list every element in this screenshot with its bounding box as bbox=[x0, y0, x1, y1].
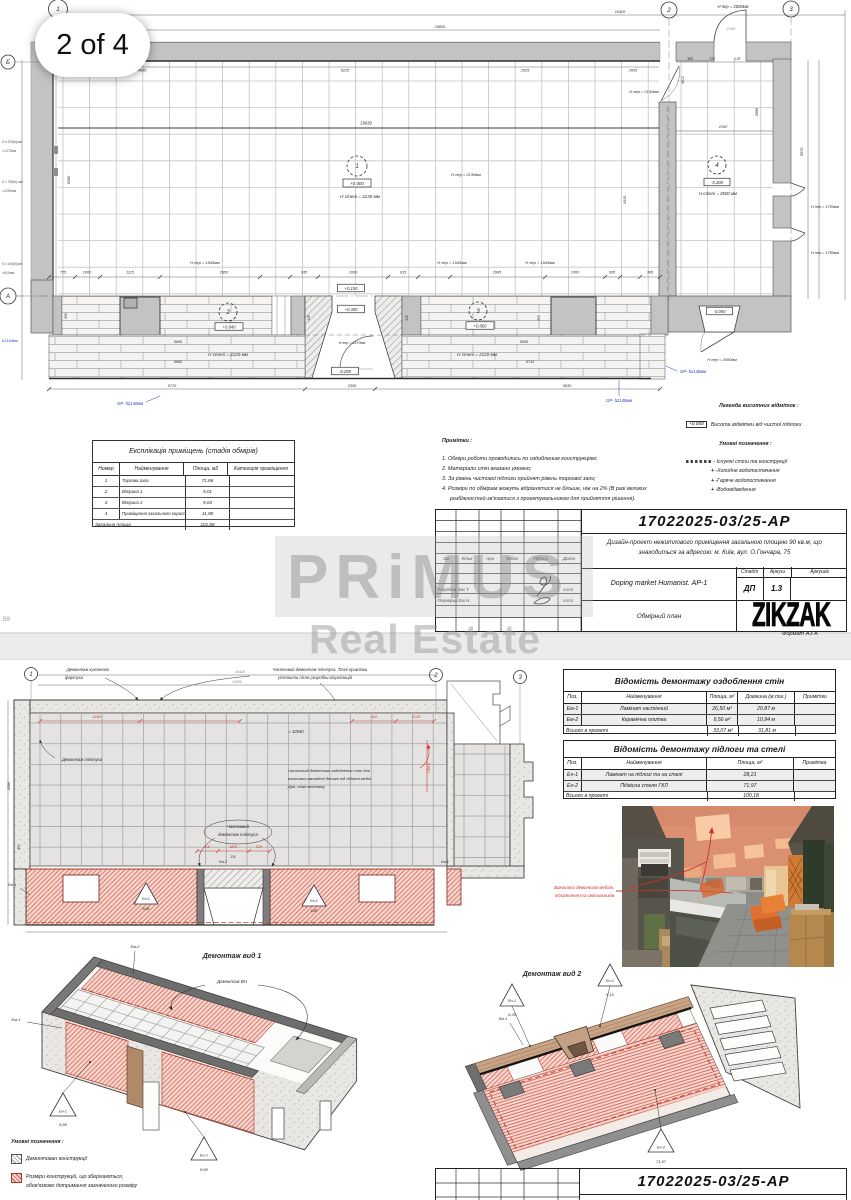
svg-text:Н стелі = 3130 мм: Н стелі = 3130 мм bbox=[340, 194, 381, 199]
svg-text:915: 915 bbox=[400, 271, 407, 275]
svg-text:×1375мм: ×1375мм bbox=[2, 149, 17, 153]
svg-text:монтажа закладної деталі під п: монтажа закладної деталі під підвісні ме… bbox=[288, 776, 372, 781]
svg-text:Ен-2: Ен-2 bbox=[657, 1146, 666, 1150]
svg-text:19630: 19630 bbox=[360, 121, 372, 126]
svg-text:фартуха: фартуха bbox=[65, 675, 84, 680]
svg-text:2: 2 bbox=[666, 8, 671, 14]
svg-text:GP- h2140мм: GP- h2140мм bbox=[117, 401, 143, 406]
svg-text:h2140мм: h2140мм bbox=[2, 339, 18, 343]
svg-text:2680: 2680 bbox=[755, 108, 759, 117]
svg-text:+0.840: +0.840 bbox=[223, 325, 237, 330]
svg-text:4610: 4610 bbox=[681, 76, 685, 84]
svg-text:16420: 16420 bbox=[235, 670, 245, 674]
svg-text:Ен-1: Ен-1 bbox=[606, 979, 614, 983]
svg-text:11830: 11830 bbox=[232, 680, 242, 684]
svg-text:Демонтаж кухонного: Демонтаж кухонного bbox=[66, 667, 110, 672]
svg-text:16420: 16420 bbox=[615, 10, 626, 14]
svg-text:5 х 415(h)мм: 5 х 415(h)мм bbox=[2, 262, 23, 266]
svg-text:Ем-1: Ем-1 bbox=[441, 860, 449, 864]
svg-text:2: 2 bbox=[433, 673, 438, 679]
svg-text:А: А bbox=[5, 294, 10, 300]
svg-text:0 х 755(h) мм: 0 х 755(h) мм bbox=[2, 180, 24, 184]
svg-text:Ен-1: Ен-1 bbox=[59, 1110, 67, 1114]
svg-text:Н пер = 2470мм: Н пер = 2470мм bbox=[339, 341, 366, 345]
svg-text:Демонтаж плінтуса: Демонтаж плінтуса bbox=[61, 757, 103, 762]
svg-text:5830: 5830 bbox=[563, 384, 572, 388]
svg-text:2950: 2950 bbox=[219, 271, 229, 275]
svg-text:1830: 1830 bbox=[229, 845, 237, 849]
svg-text:2305: 2305 bbox=[347, 384, 357, 388]
svg-text:Демонтаж вид 1: Демонтаж вид 1 bbox=[202, 952, 262, 960]
svg-text:2150: 2150 bbox=[718, 125, 728, 129]
svg-text:1000: 1000 bbox=[83, 271, 92, 275]
svg-text:71,97: 71,97 bbox=[656, 1159, 667, 1164]
svg-text:1000: 1000 bbox=[571, 271, 580, 275]
svg-text:+0.000: +0.000 bbox=[350, 181, 364, 186]
svg-text:-0.250: -0.250 bbox=[339, 369, 352, 374]
svg-text:Н пер = 2130мм: Н пер = 2130мм bbox=[629, 89, 659, 94]
svg-text:6,88: 6,88 bbox=[311, 909, 318, 913]
svg-text:5095: 5095 bbox=[520, 340, 529, 344]
svg-text:5665: 5665 bbox=[174, 360, 183, 364]
svg-text:720: 720 bbox=[709, 57, 715, 61]
svg-text:420: 420 bbox=[371, 715, 377, 719]
svg-text:6,46: 6,46 bbox=[143, 907, 150, 911]
svg-text:Ем-2: Ем-2 bbox=[131, 944, 141, 949]
svg-text:Н пер = 1945мм: Н пер = 1945мм bbox=[190, 260, 220, 265]
svg-text:5770: 5770 bbox=[168, 384, 177, 388]
svg-text:1391,5: 1391,5 bbox=[427, 763, 431, 773]
svg-text:Ем-1: Ем-1 bbox=[12, 1017, 21, 1022]
svg-text:4415: 4415 bbox=[623, 196, 627, 204]
svg-text:5225: 5225 bbox=[341, 69, 350, 73]
svg-text:2: 2 bbox=[225, 310, 230, 316]
svg-text:Н стелі = 2120 мм: Н стелі = 2120 мм bbox=[208, 352, 249, 357]
svg-text:Н пер = 1945мм: Н пер = 1945мм bbox=[437, 260, 467, 265]
svg-text:850: 850 bbox=[64, 313, 68, 319]
svg-text:2065: 2065 bbox=[628, 69, 638, 73]
svg-text:Частковий демонтаж оздоблення: Частковий демонтаж оздоблення стін для bbox=[288, 768, 371, 773]
svg-text:5 х 515(h)мм: 5 х 515(h)мм bbox=[2, 140, 23, 144]
svg-text:4835: 4835 bbox=[138, 69, 147, 73]
svg-text:935: 935 bbox=[609, 271, 616, 275]
svg-text:915: 915 bbox=[405, 315, 409, 321]
svg-text:Виконати демонтаж меблів,: Виконати демонтаж меблів, bbox=[554, 885, 614, 890]
svg-text:2150: 2150 bbox=[726, 27, 736, 31]
svg-text:935: 935 bbox=[307, 315, 311, 321]
svg-text:×1250мм: ×1250мм bbox=[2, 189, 17, 193]
svg-text:-0.050: -0.050 bbox=[714, 309, 727, 314]
svg-text:Н пер = 2130мм: Н пер = 2130мм bbox=[451, 172, 481, 177]
svg-text:1: 1 bbox=[29, 672, 32, 678]
svg-text:5743: 5743 bbox=[526, 360, 535, 364]
svg-text:15830: 15830 bbox=[435, 25, 446, 29]
svg-text:+0.150: +0.150 bbox=[345, 286, 359, 291]
svg-text:Ем-1: Ем-1 bbox=[8, 883, 17, 887]
svg-text:GP- h2140мм: GP- h2140мм bbox=[606, 398, 632, 403]
svg-text:Частковий: Частковий bbox=[227, 824, 250, 829]
svg-text:1115: 1115 bbox=[126, 271, 135, 275]
svg-text:Н пер = 2000мм: Н пер = 2000мм bbox=[707, 357, 737, 362]
svg-text:915: 915 bbox=[256, 845, 262, 849]
svg-text:365: 365 bbox=[647, 271, 654, 275]
svg-text:130: 130 bbox=[230, 855, 236, 859]
svg-text:-0.200: -0.200 bbox=[711, 180, 724, 185]
svg-text:3.25: 3.25 bbox=[734, 57, 741, 61]
svg-text:2130: 2130 bbox=[411, 715, 421, 719]
svg-text:Ен-1: Ен-1 bbox=[142, 897, 150, 901]
svg-text:Н стелі = 3500 мм: Н стелі = 3500 мм bbox=[699, 191, 737, 196]
svg-text:725: 725 bbox=[60, 271, 67, 275]
svg-text:уточнити після розробки візуал: уточнити після розробки візуалізацій bbox=[277, 675, 353, 680]
svg-text:= 10940: = 10940 bbox=[288, 729, 304, 734]
svg-text:385: 385 bbox=[687, 57, 693, 61]
svg-text:852: 852 bbox=[17, 844, 21, 850]
svg-text:4200: 4200 bbox=[93, 714, 103, 719]
svg-text:1: 1 bbox=[355, 164, 358, 170]
svg-text:Див. план монтажу: Див. план монтажу bbox=[287, 784, 326, 789]
svg-text:Ен-1: Ен-1 bbox=[508, 999, 516, 1003]
svg-text:Н пер = 1780мм: Н пер = 1780мм bbox=[811, 251, 839, 255]
svg-text:Н пер = 1780мм: Н пер = 1780мм bbox=[811, 205, 839, 209]
svg-text:5065: 5065 bbox=[174, 340, 183, 344]
svg-text:Ем-2: Ем-2 bbox=[219, 860, 227, 864]
svg-text:2995: 2995 bbox=[492, 271, 502, 275]
svg-text:Н пер = 1945мм: Н пер = 1945мм bbox=[525, 260, 555, 265]
svg-text:+0.860: +0.860 bbox=[474, 324, 488, 329]
svg-text:5390: 5390 bbox=[67, 175, 71, 184]
svg-text:Ен-1: Ен-1 bbox=[310, 899, 318, 903]
svg-text:Б: Б bbox=[6, 60, 10, 66]
svg-text:Частковий демонтаж плінтуса. Т: Частковий демонтаж плінтуса. Точні прив'… bbox=[273, 667, 368, 672]
svg-text:5,35: 5,35 bbox=[508, 1012, 517, 1017]
svg-text::59: :59 bbox=[1, 616, 10, 623]
svg-text:5280: 5280 bbox=[7, 781, 11, 790]
svg-text:1630: 1630 bbox=[349, 271, 358, 275]
svg-text:1: 1 bbox=[56, 7, 59, 13]
svg-text:Демонтаж вид 2: Демонтаж вид 2 bbox=[522, 970, 582, 978]
svg-text:обладнання та світильників: обладнання та світильників bbox=[555, 893, 615, 898]
svg-text:+0.300: +0.300 bbox=[345, 307, 359, 312]
svg-text:Ем-1: Ем-1 bbox=[499, 1017, 508, 1021]
svg-text:Демонтаж ВН: Демонтаж ВН bbox=[216, 979, 248, 984]
svg-text:935: 935 bbox=[301, 271, 308, 275]
svg-text:8,86: 8,86 bbox=[59, 1122, 68, 1127]
svg-text:×910мм: ×910мм bbox=[2, 271, 15, 275]
svg-text:850: 850 bbox=[537, 315, 541, 321]
svg-text:Н стелі = 2120 мм: Н стелі = 2120 мм bbox=[457, 352, 498, 357]
svg-text:демонтаж плінтуса: демонтаж плінтуса bbox=[218, 832, 258, 837]
svg-text:Н пер = 2000мм: Н пер = 2000мм bbox=[718, 4, 749, 9]
svg-text:GP- h2140мм: GP- h2140мм bbox=[680, 369, 706, 374]
svg-text:5570: 5570 bbox=[800, 147, 804, 156]
svg-text:2625: 2625 bbox=[520, 69, 530, 73]
